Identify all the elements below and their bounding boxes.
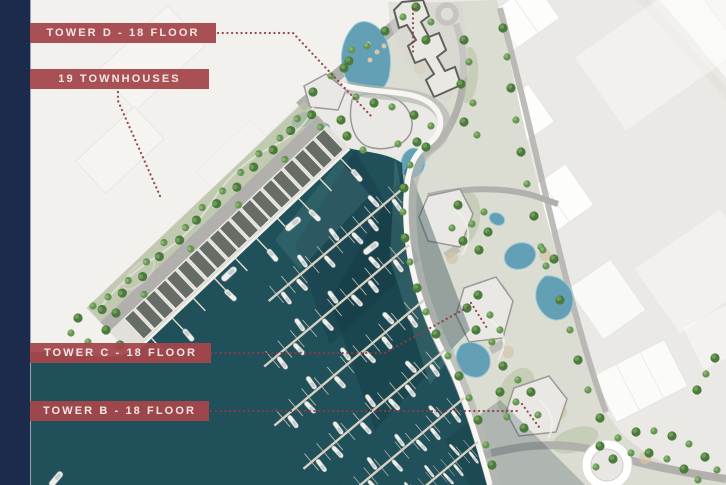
callout-tower-c-label: TOWER C - 18 FLOOR <box>44 347 197 359</box>
callout-tower-d-label: TOWER D - 18 FLOOR <box>46 27 199 39</box>
callout-townhouses-label: 19 TOWNHOUSES <box>58 73 180 85</box>
callout-tower-d: TOWER D - 18 FLOOR <box>30 23 216 43</box>
circular-building <box>582 440 632 485</box>
callout-tower-c: TOWER C - 18 FLOOR <box>30 343 211 363</box>
callout-tower-b-label: TOWER B - 18 FLOOR <box>43 405 196 417</box>
callout-townhouses: 19 TOWNHOUSES <box>30 69 209 89</box>
left-accent-bar <box>0 0 31 485</box>
callout-tower-b: TOWER B - 18 FLOOR <box>30 401 209 421</box>
masterplan-slide: TOWER D - 18 FLOOR 19 TOWNHOUSES TOWER C… <box>0 0 726 485</box>
